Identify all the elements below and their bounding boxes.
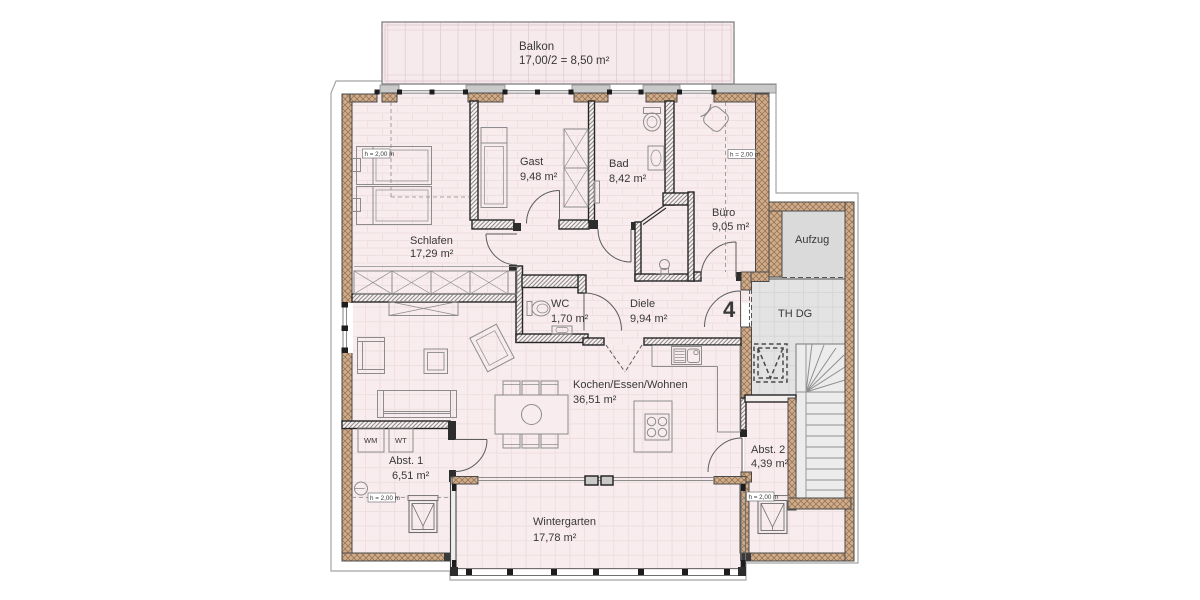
- svg-text:h = 2,00 m: h = 2,00 m: [749, 494, 779, 501]
- svg-text:Balkon: Balkon: [519, 41, 554, 53]
- svg-text:Abst. 1: Abst. 1: [389, 455, 423, 467]
- svg-text:TH DG: TH DG: [778, 308, 812, 320]
- svg-text:Diele: Diele: [630, 298, 655, 310]
- svg-text:Abst. 2: Abst. 2: [751, 444, 785, 456]
- svg-text:36,51 m²: 36,51 m²: [573, 394, 617, 406]
- svg-text:9,48 m²: 9,48 m²: [520, 171, 558, 183]
- svg-text:h = 2,00 m: h = 2,00 m: [365, 151, 395, 158]
- svg-text:Bad: Bad: [609, 158, 629, 170]
- svg-text:17,29 m²: 17,29 m²: [410, 248, 454, 260]
- svg-text:Büro: Büro: [712, 207, 735, 219]
- svg-text:17,00/2 = 8,50 m²: 17,00/2 = 8,50 m²: [519, 55, 610, 67]
- svg-text:6,51 m²: 6,51 m²: [392, 470, 430, 482]
- svg-text:WC: WC: [551, 298, 569, 310]
- svg-text:1,70 m²: 1,70 m²: [551, 313, 589, 325]
- svg-text:9,94 m²: 9,94 m²: [630, 313, 668, 325]
- svg-text:WT: WT: [395, 436, 407, 445]
- svg-text:4,39 m²: 4,39 m²: [751, 458, 789, 470]
- svg-text:Gast: Gast: [520, 156, 543, 168]
- svg-text:8,42 m²: 8,42 m²: [609, 173, 647, 185]
- svg-text:9,05 m²: 9,05 m²: [712, 221, 750, 233]
- svg-text:Kochen/Essen/Wohnen: Kochen/Essen/Wohnen: [573, 379, 688, 391]
- svg-text:17,78 m²: 17,78 m²: [533, 532, 577, 544]
- svg-text:h = 2,00 m: h = 2,00 m: [370, 495, 400, 502]
- svg-text:Aufzug: Aufzug: [795, 234, 829, 246]
- svg-text:Wintergarten: Wintergarten: [533, 516, 596, 528]
- svg-text:Schlafen: Schlafen: [410, 235, 453, 247]
- svg-text:WM: WM: [364, 436, 377, 445]
- svg-text:4: 4: [723, 297, 736, 322]
- svg-text:h = 2,00 m: h = 2,00 m: [730, 152, 760, 159]
